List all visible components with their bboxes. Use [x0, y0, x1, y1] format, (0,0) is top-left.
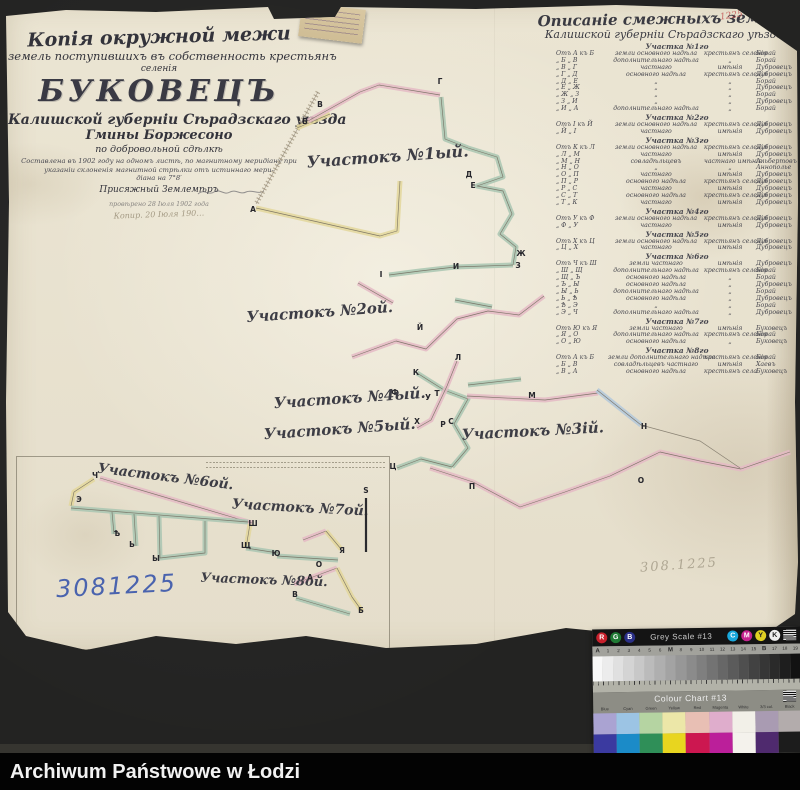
title-line-3: селенія: [8, 64, 310, 74]
grey-tick-label: 5: [644, 646, 655, 656]
grey-step: [676, 655, 687, 680]
surveyor-signature: [196, 186, 266, 198]
colour-chart-card: Colour Chart #13 BlueCyanGreenYellowRedM…: [593, 690, 800, 756]
grey-tick-label: 14: [738, 644, 749, 654]
colour-patch: [755, 711, 778, 732]
grey-tick-label: 19: [790, 644, 800, 654]
colour-patch: [663, 712, 686, 733]
r-circle-icon: R: [596, 632, 607, 643]
colour-patch: [732, 711, 755, 732]
table-row: „ Э „ Чдополнительнаго надѣла„Дубровецъ: [556, 310, 798, 317]
grey-step: [603, 656, 614, 681]
table-cell: крестьянъ села: [704, 369, 756, 376]
grey-tick-label: B: [759, 644, 770, 654]
table-cell: „ Ц „ Х: [556, 245, 608, 252]
table-row: „ Т „ КчастнагоимѣніяДубровецъ: [556, 200, 798, 207]
colour-patch: [709, 733, 732, 754]
title-line-8: Составлена въ 1902 году на одномъ листѣ,…: [8, 157, 310, 165]
title-line-6: Гмины Боржесоно: [8, 128, 310, 143]
table-cell: „ О „ Ю: [556, 339, 608, 346]
grey-step: [655, 655, 666, 680]
table-cell: „ Ф „ У: [556, 223, 608, 230]
table-cell: основного надѣла: [608, 339, 704, 346]
grey-step: [593, 656, 604, 681]
grey-tick-label: 1: [603, 646, 614, 656]
table-cell: Дубровецъ: [756, 245, 798, 252]
table-cell: Буковецъ: [756, 369, 798, 376]
colour-patch: [617, 734, 640, 755]
table-cell: Дубровецъ: [756, 223, 798, 230]
y-circle-icon: Y: [755, 630, 766, 641]
grey-step: [717, 655, 728, 680]
map-sheet: Копія окружной межи земель поступившихъ …: [6, 2, 798, 652]
b-circle-icon: B: [624, 632, 635, 643]
table-row: „ И „ Адополнительнаго надѣла„Борай: [556, 106, 798, 113]
colour-patch: [686, 712, 709, 733]
grey-step: [697, 655, 708, 680]
grey-tick-label: 12: [717, 645, 728, 655]
colour-patch: [778, 732, 800, 753]
colour-patch: [686, 733, 709, 754]
table-cell: имѣнія: [704, 245, 756, 252]
table-cell: Дубровецъ: [756, 200, 798, 207]
colour-patch: [616, 713, 639, 734]
title-line-1: Копія окружной межи: [8, 22, 310, 52]
barcode-patch-icon: [783, 630, 796, 641]
grey-step: [738, 654, 749, 679]
grey-tick-label: 15: [748, 644, 759, 654]
grey-step: [645, 656, 656, 681]
table-row: „ Й „ ІчастнагоимѣніяДубровецъ: [556, 129, 798, 136]
table-cell: Борай: [756, 106, 798, 113]
colour-patch: [732, 732, 755, 753]
colour-patch: [640, 733, 663, 754]
colour-chart-title: Colour Chart #13: [598, 691, 783, 704]
title-line-9: указаніи склоненія магнитной стрѣлки отъ…: [8, 166, 310, 174]
title-line-5: Калишской губерніи Сѣрадзскаго уѣзда: [8, 112, 310, 128]
table-row: „ Ц „ ХчастнагоимѣніяДубровецъ: [556, 245, 798, 252]
table-cell: частнаго: [608, 200, 704, 207]
grey-step: [769, 654, 780, 679]
title-line-10: діана на 7°8′: [8, 174, 310, 182]
table-cell: имѣнія: [704, 223, 756, 230]
annotation-note: [206, 462, 386, 474]
grey-tick-label: 18: [780, 644, 791, 654]
table-row: „ В „ Аосновного надѣлакрестьянъ селаБук…: [556, 369, 798, 376]
title-line-2: земель поступившихъ въ собственность кре…: [8, 49, 310, 63]
barcode-patch-icon: [783, 691, 796, 702]
grey-step: [634, 656, 645, 681]
pencil-number: 308.1225: [640, 555, 719, 575]
title-line-7: по добровольной сдѣлкѣ: [8, 144, 310, 155]
table-cell: частнаго: [608, 245, 704, 252]
grey-tick-label: A: [592, 646, 603, 656]
grey-step: [749, 654, 760, 679]
table-cell: дополнительнаго надѣла: [608, 106, 704, 113]
table-cell: основного надѣла: [608, 369, 704, 376]
grey-tick-label: 8: [676, 645, 687, 655]
m-circle-icon: M: [741, 630, 752, 641]
grey-tick-label: 9: [686, 645, 697, 655]
grey-tick-label: 13: [728, 644, 739, 654]
archive-name: Archiwum Państwowe w Łodzi: [0, 753, 800, 784]
table-row: „ Ф „ УчастнагоимѣніяДубровецъ: [556, 223, 798, 230]
table-cell: Буковецъ: [756, 339, 798, 346]
inset-frame: [16, 456, 390, 650]
table-cell: „ И „ А: [556, 106, 608, 113]
colour-patch: [593, 713, 616, 734]
table-cell: дополнительнаго надѣла: [608, 310, 704, 317]
table-cell: „ Э „ Ч: [556, 310, 608, 317]
grey-step: [728, 654, 739, 679]
grey-scale-card: RGB Grey Scale #13 CMYK A123456M89101112…: [592, 627, 800, 693]
grey-tick-label: 4: [634, 646, 645, 656]
adjacent-lands-table: Участка №1гоОтъ А къ Бземли основного на…: [556, 42, 798, 376]
grey-step: [707, 655, 718, 680]
grey-step: [665, 655, 676, 680]
scan-background: Копія окружной межи земель поступившихъ …: [0, 0, 800, 790]
k-circle-icon: K: [769, 630, 780, 641]
description-header: Описаніе смежныхъ земель Калишской губер…: [514, 10, 800, 41]
colour-row-full: [594, 732, 800, 756]
grey-tick-label: 11: [707, 645, 718, 655]
colour-patch: [709, 712, 732, 733]
grey-tick-label: 3: [624, 646, 635, 656]
table-cell: Дубровецъ: [756, 129, 798, 136]
grey-step: [759, 654, 770, 679]
table-cell: частнаго: [608, 129, 704, 136]
calibration-target: RGB Grey Scale #13 CMYK A123456M89101112…: [592, 627, 800, 756]
table-cell: „ Т „ К: [556, 200, 608, 207]
colour-patch: [640, 712, 663, 733]
grey-step: [613, 656, 624, 681]
table-cell: „ В „ А: [556, 369, 608, 376]
grey-tick-label: 6: [655, 645, 666, 655]
grey-step: [686, 655, 697, 680]
table-cell: „: [704, 339, 756, 346]
grey-tick-label: 10: [696, 645, 707, 655]
table-cell: „: [704, 310, 756, 317]
scan-viewer: { "footer": {"text": "Archiwum Państwowe…: [0, 0, 800, 790]
description-subtitle: Калишской губерніи Сѣрадзскаго уѣзда: [514, 28, 800, 41]
village-name-title: БУКОВЕЦЪ: [8, 74, 310, 109]
colour-patch: [663, 733, 686, 754]
grey-tick-label: 2: [613, 646, 624, 656]
table-cell: частнаго: [608, 223, 704, 230]
table-cell: Дубровецъ: [756, 310, 798, 317]
table-cell: имѣнія: [704, 129, 756, 136]
grey-step: [780, 654, 791, 679]
table-cell: „ Й „ І: [556, 129, 608, 136]
colour-row-light: [593, 711, 800, 735]
archive-footer: Archiwum Państwowe w Łodzi: [0, 753, 800, 790]
grey-step: [624, 656, 635, 681]
grey-scale-title: Grey Scale #13: [638, 632, 724, 642]
grey-step: [790, 654, 800, 679]
grey-tick-label: 17: [769, 644, 780, 654]
colour-patch: [755, 732, 778, 753]
grey-tick-label: M: [665, 645, 676, 655]
grey-gradient-strip: [593, 654, 800, 682]
table-cell: „: [704, 106, 756, 113]
g-circle-icon: G: [610, 632, 621, 643]
table-row: „ О „ Юосновного надѣла„Буковецъ: [556, 339, 798, 346]
table-cell: имѣнія: [704, 200, 756, 207]
paper-crease: [494, 2, 495, 652]
colour-patch: [778, 711, 800, 732]
c-circle-icon: C: [727, 630, 738, 641]
